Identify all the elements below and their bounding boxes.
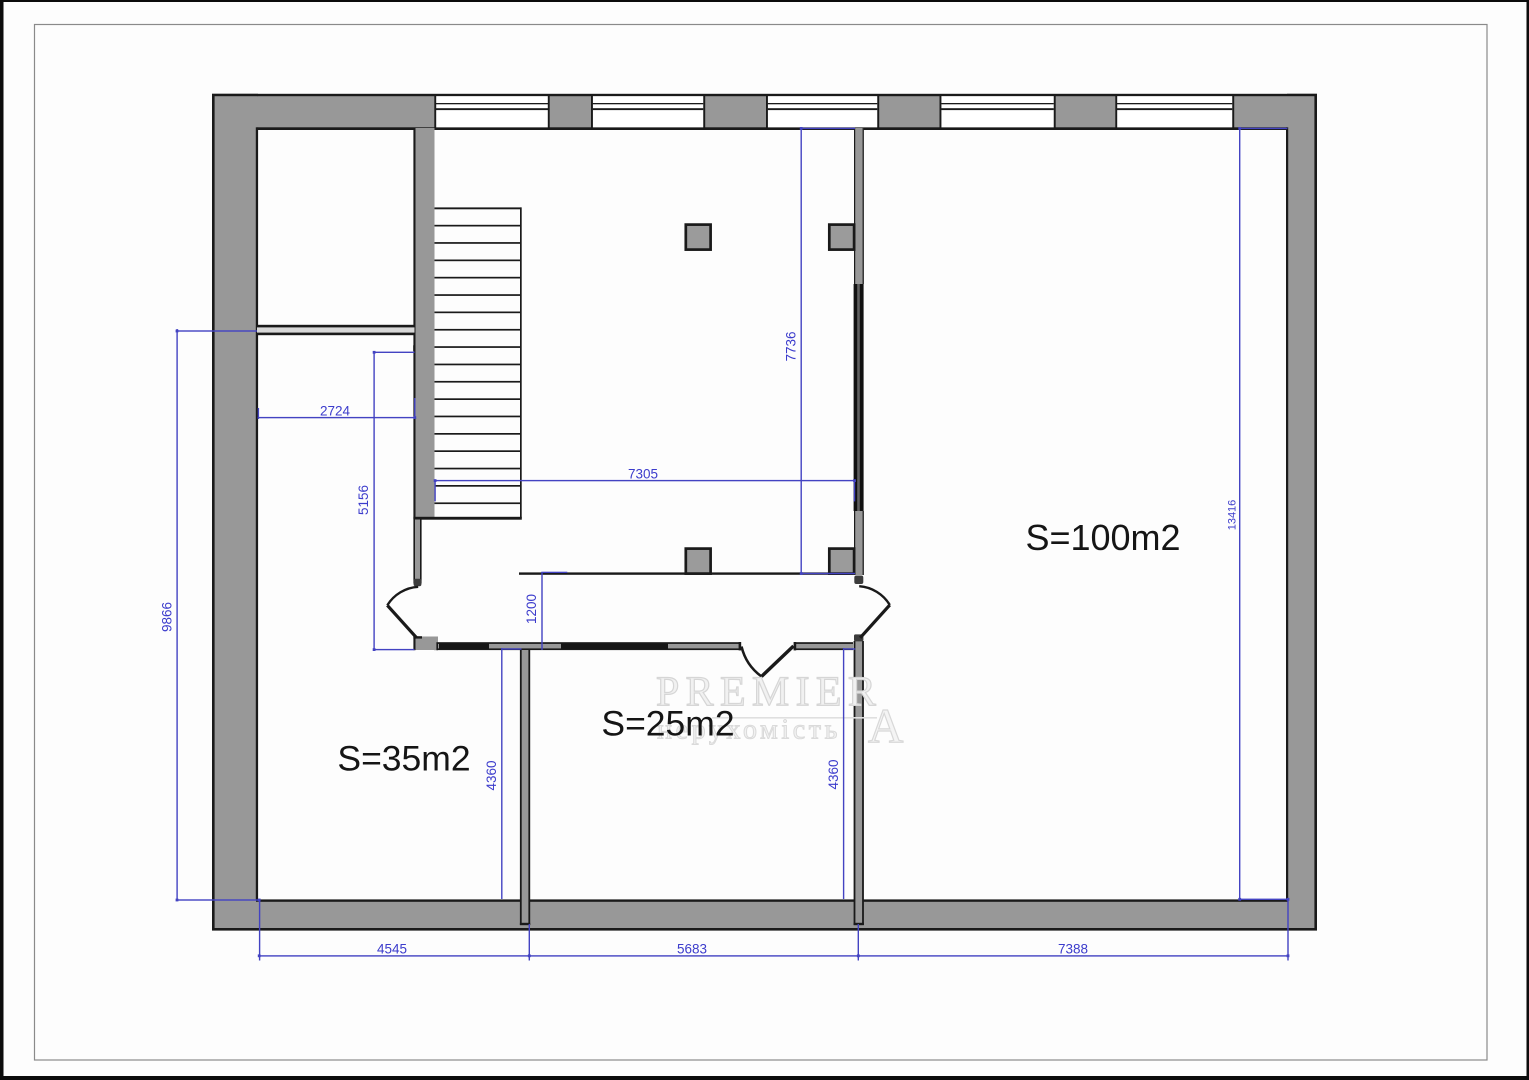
svg-text:1200: 1200 bbox=[524, 594, 539, 624]
svg-text:7388: 7388 bbox=[1058, 942, 1088, 957]
svg-text:S=25m2: S=25m2 bbox=[601, 704, 734, 744]
svg-text:4360: 4360 bbox=[484, 760, 499, 790]
svg-text:7305: 7305 bbox=[628, 467, 658, 482]
svg-text:7736: 7736 bbox=[784, 331, 799, 361]
svg-text:5683: 5683 bbox=[677, 942, 707, 957]
svg-text:5156: 5156 bbox=[356, 485, 371, 515]
svg-text:9866: 9866 bbox=[160, 602, 175, 632]
svg-text:S=100m2: S=100m2 bbox=[1025, 517, 1180, 558]
svg-text:4545: 4545 bbox=[377, 942, 407, 957]
svg-text:А: А bbox=[868, 698, 904, 753]
svg-text:4360: 4360 bbox=[826, 759, 841, 789]
svg-text:S=35m2: S=35m2 bbox=[337, 739, 470, 779]
svg-text:2724: 2724 bbox=[320, 403, 351, 418]
svg-text:13416: 13416 bbox=[1227, 500, 1239, 531]
